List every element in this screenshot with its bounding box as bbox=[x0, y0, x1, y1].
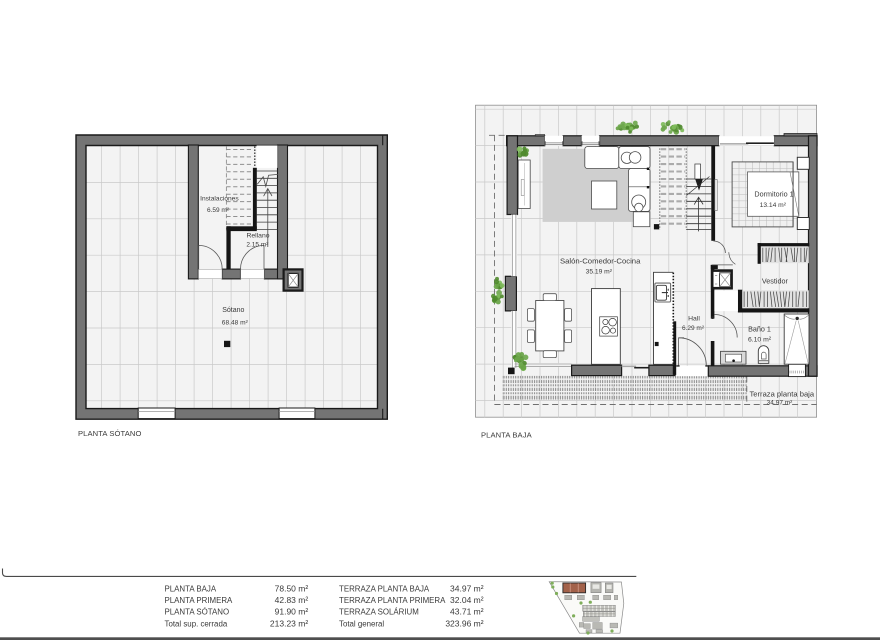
svg-text:Total general: Total general bbox=[339, 619, 384, 628]
svg-text:78.50 m²: 78.50 m² bbox=[275, 584, 309, 594]
svg-text:Baño 1: Baño 1 bbox=[748, 325, 771, 334]
svg-text:13.14 m²: 13.14 m² bbox=[760, 202, 787, 209]
svg-text:6.29 m²: 6.29 m² bbox=[682, 325, 705, 332]
svg-text:PLANTA BAJA: PLANTA BAJA bbox=[165, 585, 217, 594]
svg-text:Rellano: Rellano bbox=[246, 233, 269, 240]
svg-text:Salón-Comedor-Cocina: Salón-Comedor-Cocina bbox=[560, 256, 641, 265]
svg-text:Instalaciones: Instalaciones bbox=[200, 195, 239, 202]
svg-text:2.15 m²: 2.15 m² bbox=[246, 242, 269, 249]
svg-text:91.90 m²: 91.90 m² bbox=[275, 607, 309, 617]
svg-text:Hall: Hall bbox=[688, 315, 700, 322]
svg-text:TERRAZA PLANTA PRIMERA: TERRAZA PLANTA PRIMERA bbox=[339, 596, 446, 605]
svg-text:6.59 m²: 6.59 m² bbox=[207, 207, 230, 214]
svg-text:Dormitorio 1: Dormitorio 1 bbox=[754, 190, 793, 199]
svg-text:TERRAZA SOLÁRIUM: TERRAZA SOLÁRIUM bbox=[339, 608, 419, 617]
svg-text:35.19 m²: 35.19 m² bbox=[586, 269, 613, 276]
svg-text:PLANTA SÓTANO: PLANTA SÓTANO bbox=[165, 608, 230, 617]
svg-text:34.97 m²: 34.97 m² bbox=[767, 399, 793, 406]
svg-text:TERRAZA PLANTA BAJA: TERRAZA PLANTA BAJA bbox=[339, 585, 430, 594]
svg-text:32.04 m²: 32.04 m² bbox=[450, 595, 484, 605]
svg-text:PLANTA BAJA: PLANTA BAJA bbox=[481, 431, 533, 440]
svg-text:Total sup. cerrada: Total sup. cerrada bbox=[165, 619, 228, 628]
svg-text:Sótano: Sótano bbox=[222, 307, 244, 314]
svg-text:Terraza planta baja: Terraza planta baja bbox=[750, 390, 815, 399]
svg-text:PLANTA SÓTANO: PLANTA SÓTANO bbox=[78, 429, 141, 438]
svg-text:PLANTA PRIMERA: PLANTA PRIMERA bbox=[165, 596, 234, 605]
svg-text:Vestidor: Vestidor bbox=[762, 277, 789, 286]
svg-text:213.23 m²: 213.23 m² bbox=[270, 618, 308, 628]
svg-text:323.96 m²: 323.96 m² bbox=[445, 618, 483, 628]
svg-text:42.83 m²: 42.83 m² bbox=[275, 595, 309, 605]
svg-text:43.71 m²: 43.71 m² bbox=[450, 607, 484, 617]
svg-text:34.97 m²: 34.97 m² bbox=[450, 584, 484, 594]
svg-text:68.48 m²: 68.48 m² bbox=[222, 320, 249, 327]
svg-text:6.10 m²: 6.10 m² bbox=[748, 336, 772, 343]
